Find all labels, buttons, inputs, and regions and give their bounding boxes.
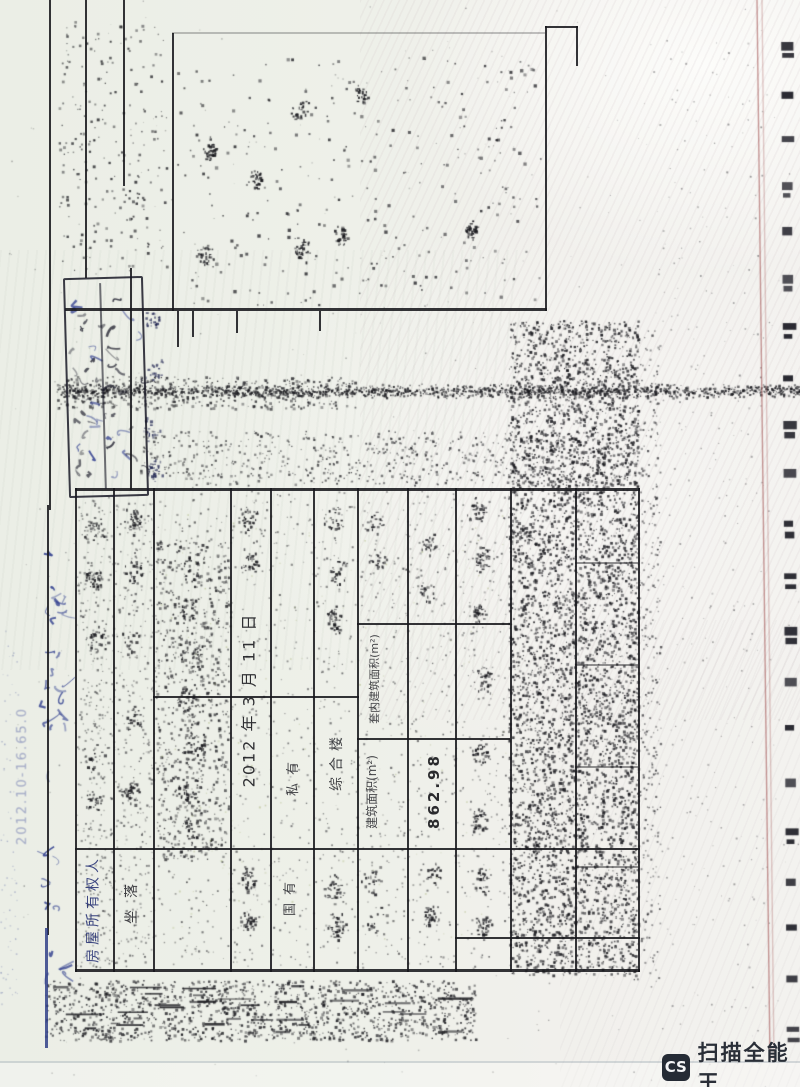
table-grid-line — [172, 33, 174, 311]
table-grid-line — [75, 969, 640, 972]
table-grid-line — [236, 311, 238, 333]
table-grid-line — [638, 488, 640, 972]
table-grid-line — [357, 488, 359, 972]
land-type-value-text: 国有 — [279, 867, 297, 923]
table-grid-line — [85, 0, 87, 278]
table-grid-line — [75, 488, 640, 491]
table-grid-line — [75, 488, 77, 972]
table-grid-line — [455, 937, 640, 939]
table-grid-line — [545, 26, 578, 28]
inner-floor-area-label: 套内建筑面积(m²) — [365, 621, 383, 737]
table-grid-line — [47, 505, 49, 935]
table-grid-line — [123, 0, 125, 186]
table-grid-line — [575, 664, 638, 666]
table-grid-line — [575, 766, 638, 768]
tenure-value-text: 私有 — [282, 747, 300, 803]
table-grid-line — [576, 26, 578, 66]
table-grid-line — [270, 488, 272, 972]
table-grid-line — [407, 488, 409, 972]
table-grid-line — [45, 928, 48, 1048]
scanned-document-page: 房屋所有权人 坐落 2012 年 3 月 11 日 综合楼 私有 国有 套内建筑… — [0, 0, 800, 1087]
table-grid-line — [177, 311, 179, 347]
table-grid-line — [49, 0, 51, 510]
table-grid-line — [192, 311, 194, 337]
table-grid-line — [357, 738, 510, 740]
table-grid-line — [575, 562, 638, 564]
table-grid-line — [319, 311, 321, 331]
table-grid-line — [510, 488, 512, 972]
floor-area-label: 建筑面积(m²) — [362, 742, 380, 842]
table-grid-line — [575, 488, 577, 972]
registration-date-text: 2012 年 3 月 11 日 — [239, 593, 257, 808]
scan-noise-layer — [0, 0, 800, 1087]
table-grid-line — [230, 488, 232, 972]
stamp-divider-line — [99, 283, 107, 489]
table-grid-line — [172, 32, 545, 34]
table-grid-line — [455, 488, 457, 972]
table-grid-line — [153, 488, 155, 972]
location-label-text: 坐落 — [122, 863, 140, 933]
margin-handwriting: 2012.10-16.65.0 — [13, 641, 31, 911]
table-grid-line — [113, 488, 115, 972]
table-grid-line — [313, 488, 315, 972]
table-grid-line — [575, 866, 638, 868]
floor-area-value: 862.98 — [425, 749, 443, 833]
table-grid-line — [545, 26, 547, 311]
camscanner-app-name: 扫描全能王 — [698, 1037, 800, 1087]
owner-label-text: 房屋所有权人 — [84, 852, 102, 967]
table-grid-line — [75, 848, 640, 850]
camscanner-logo-badge: CS — [662, 1054, 690, 1081]
handwritten-stamp-box — [63, 276, 149, 498]
camscanner-watermark: CS 扫描全能王 — [662, 1052, 800, 1082]
usage-value-text: 综合楼 — [327, 722, 345, 800]
